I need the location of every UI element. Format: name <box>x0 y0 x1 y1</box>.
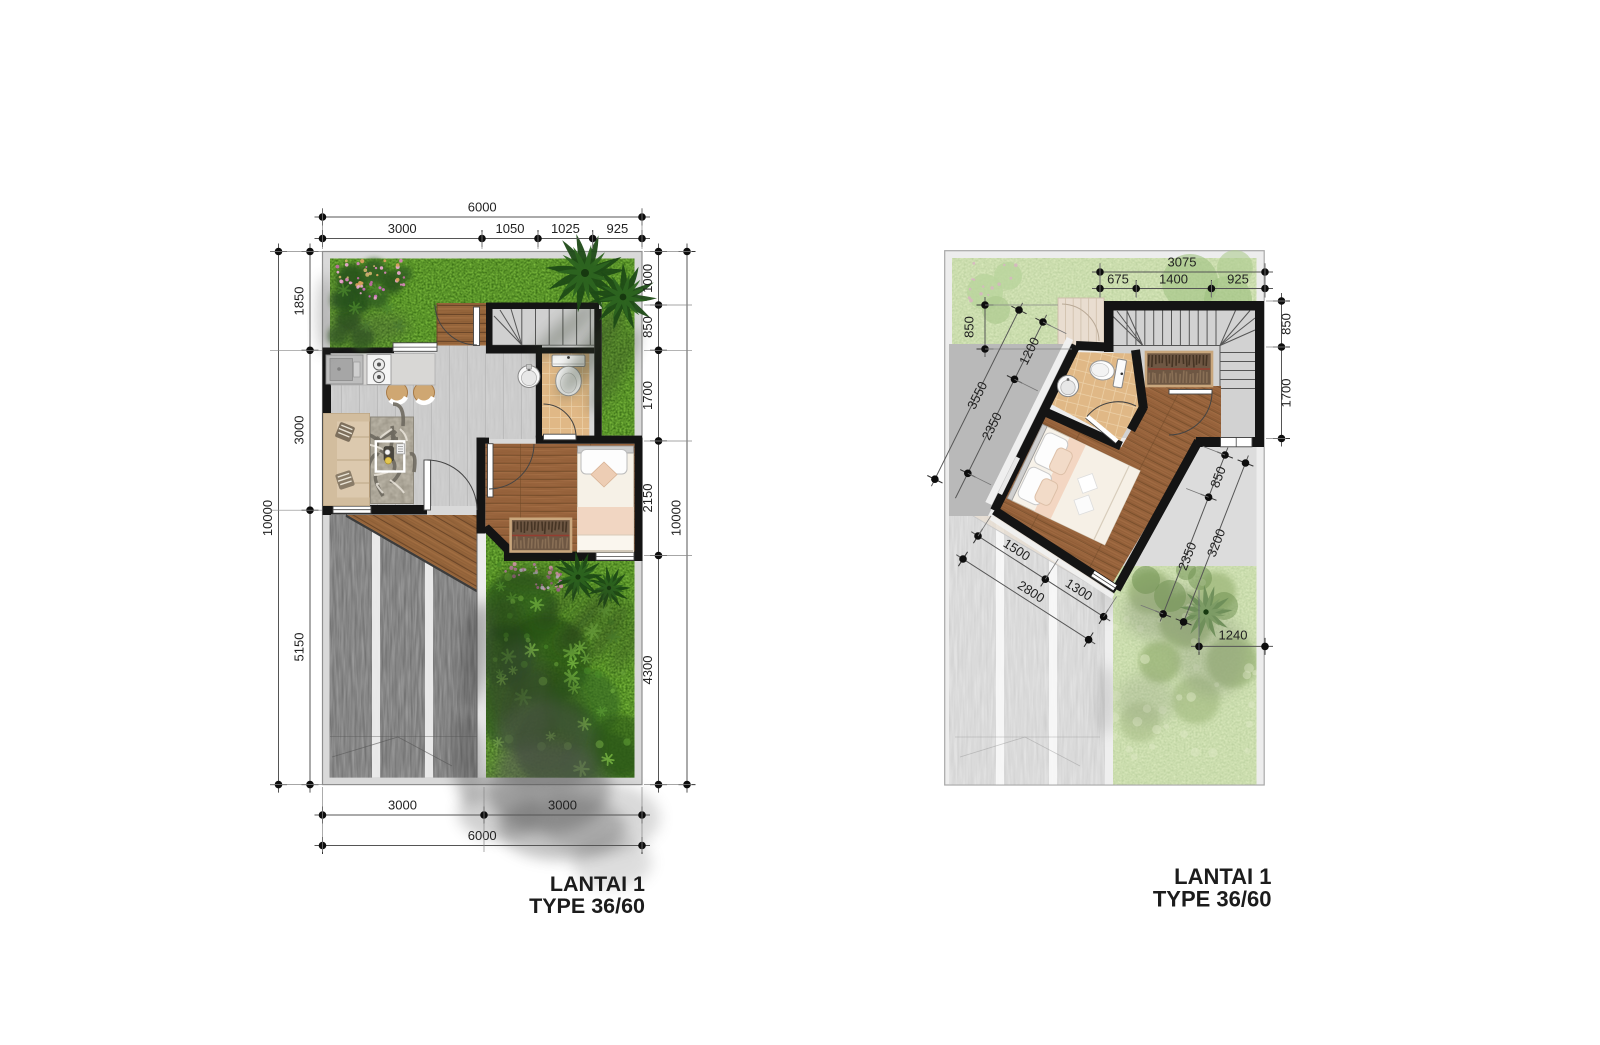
svg-text:3000: 3000 <box>292 416 307 445</box>
svg-text:850: 850 <box>640 316 655 338</box>
svg-text:10000: 10000 <box>260 500 275 536</box>
svg-text:LANTAI 1: LANTAI 1 <box>550 872 645 896</box>
svg-text:675: 675 <box>1107 272 1129 287</box>
svg-text:1700: 1700 <box>1279 379 1294 408</box>
svg-text:1700: 1700 <box>640 381 655 410</box>
svg-text:10000: 10000 <box>669 500 684 536</box>
svg-text:1850: 1850 <box>292 287 307 316</box>
svg-text:850: 850 <box>1279 313 1294 335</box>
svg-text:TYPE 36/60: TYPE 36/60 <box>529 894 645 918</box>
svg-text:1240: 1240 <box>1219 628 1248 643</box>
svg-text:2150: 2150 <box>640 484 655 513</box>
svg-text:1050: 1050 <box>496 221 525 236</box>
svg-text:4300: 4300 <box>640 656 655 685</box>
svg-text:3000: 3000 <box>388 798 417 813</box>
svg-text:6000: 6000 <box>468 200 497 215</box>
svg-text:1400: 1400 <box>1159 272 1188 287</box>
svg-text:LANTAI 1: LANTAI 1 <box>1174 864 1271 889</box>
svg-text:5150: 5150 <box>292 633 307 662</box>
svg-text:6000: 6000 <box>468 828 497 843</box>
svg-text:3000: 3000 <box>388 221 417 236</box>
svg-text:TYPE 36/60: TYPE 36/60 <box>1153 887 1272 912</box>
svg-text:925: 925 <box>607 221 629 236</box>
svg-text:3075: 3075 <box>1168 255 1197 270</box>
svg-text:1025: 1025 <box>551 221 580 236</box>
svg-text:925: 925 <box>1227 272 1249 287</box>
svg-text:3000: 3000 <box>548 798 577 813</box>
svg-text:1000: 1000 <box>640 264 655 293</box>
svg-text:850: 850 <box>962 316 977 338</box>
